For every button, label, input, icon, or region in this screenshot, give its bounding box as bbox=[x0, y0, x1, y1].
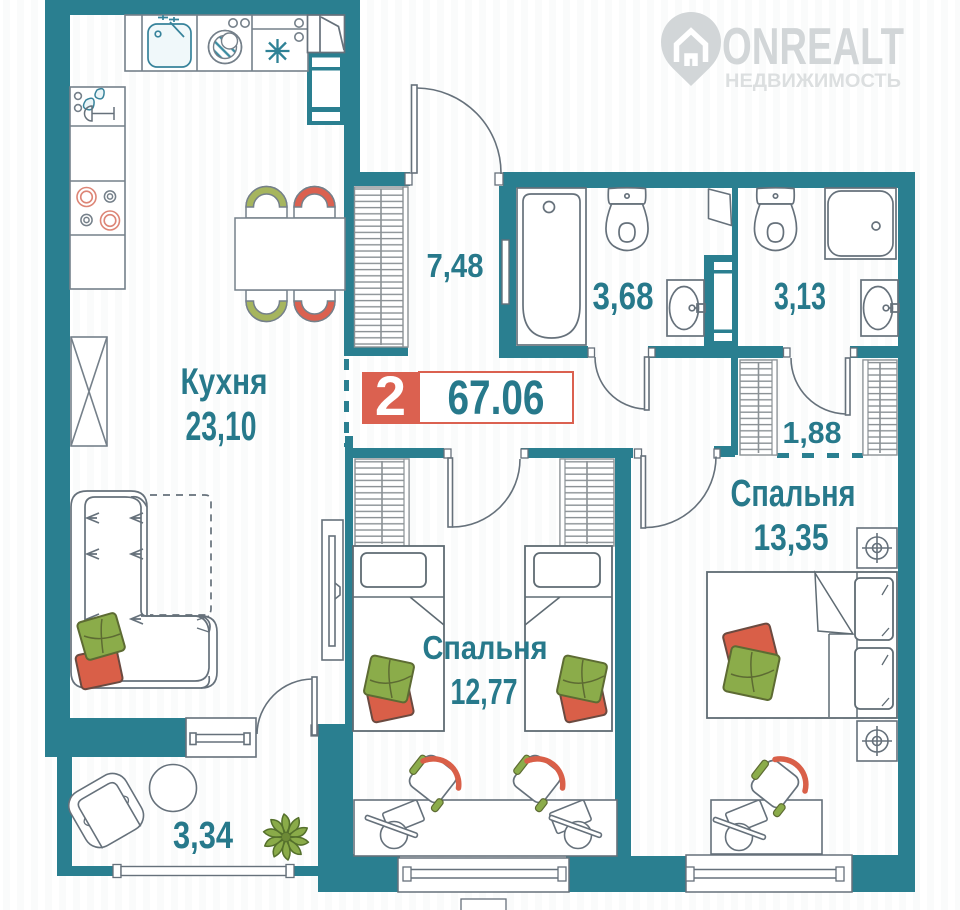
svg-text:7,48: 7,48 bbox=[427, 247, 484, 284]
svg-text:67.06: 67.06 bbox=[448, 372, 545, 425]
svg-text:Спальня: Спальня bbox=[731, 473, 856, 515]
svg-text:Кухня: Кухня bbox=[181, 361, 268, 402]
svg-text:23,10: 23,10 bbox=[186, 403, 257, 449]
svg-text:1,88: 1,88 bbox=[783, 415, 842, 450]
svg-text:НЕДВИЖИМОСТЬ: НЕДВИЖИМОСТЬ bbox=[725, 71, 901, 92]
svg-text:2: 2 bbox=[375, 364, 406, 427]
svg-text:3,34: 3,34 bbox=[173, 815, 233, 857]
svg-text:3,68: 3,68 bbox=[593, 276, 654, 318]
svg-text:12,77: 12,77 bbox=[451, 671, 518, 712]
svg-text:13,35: 13,35 bbox=[754, 517, 829, 558]
svg-text:ONREALT: ONREALT bbox=[722, 18, 904, 76]
svg-text:3,13: 3,13 bbox=[774, 276, 826, 318]
svg-text:Спальня: Спальня bbox=[423, 629, 548, 666]
